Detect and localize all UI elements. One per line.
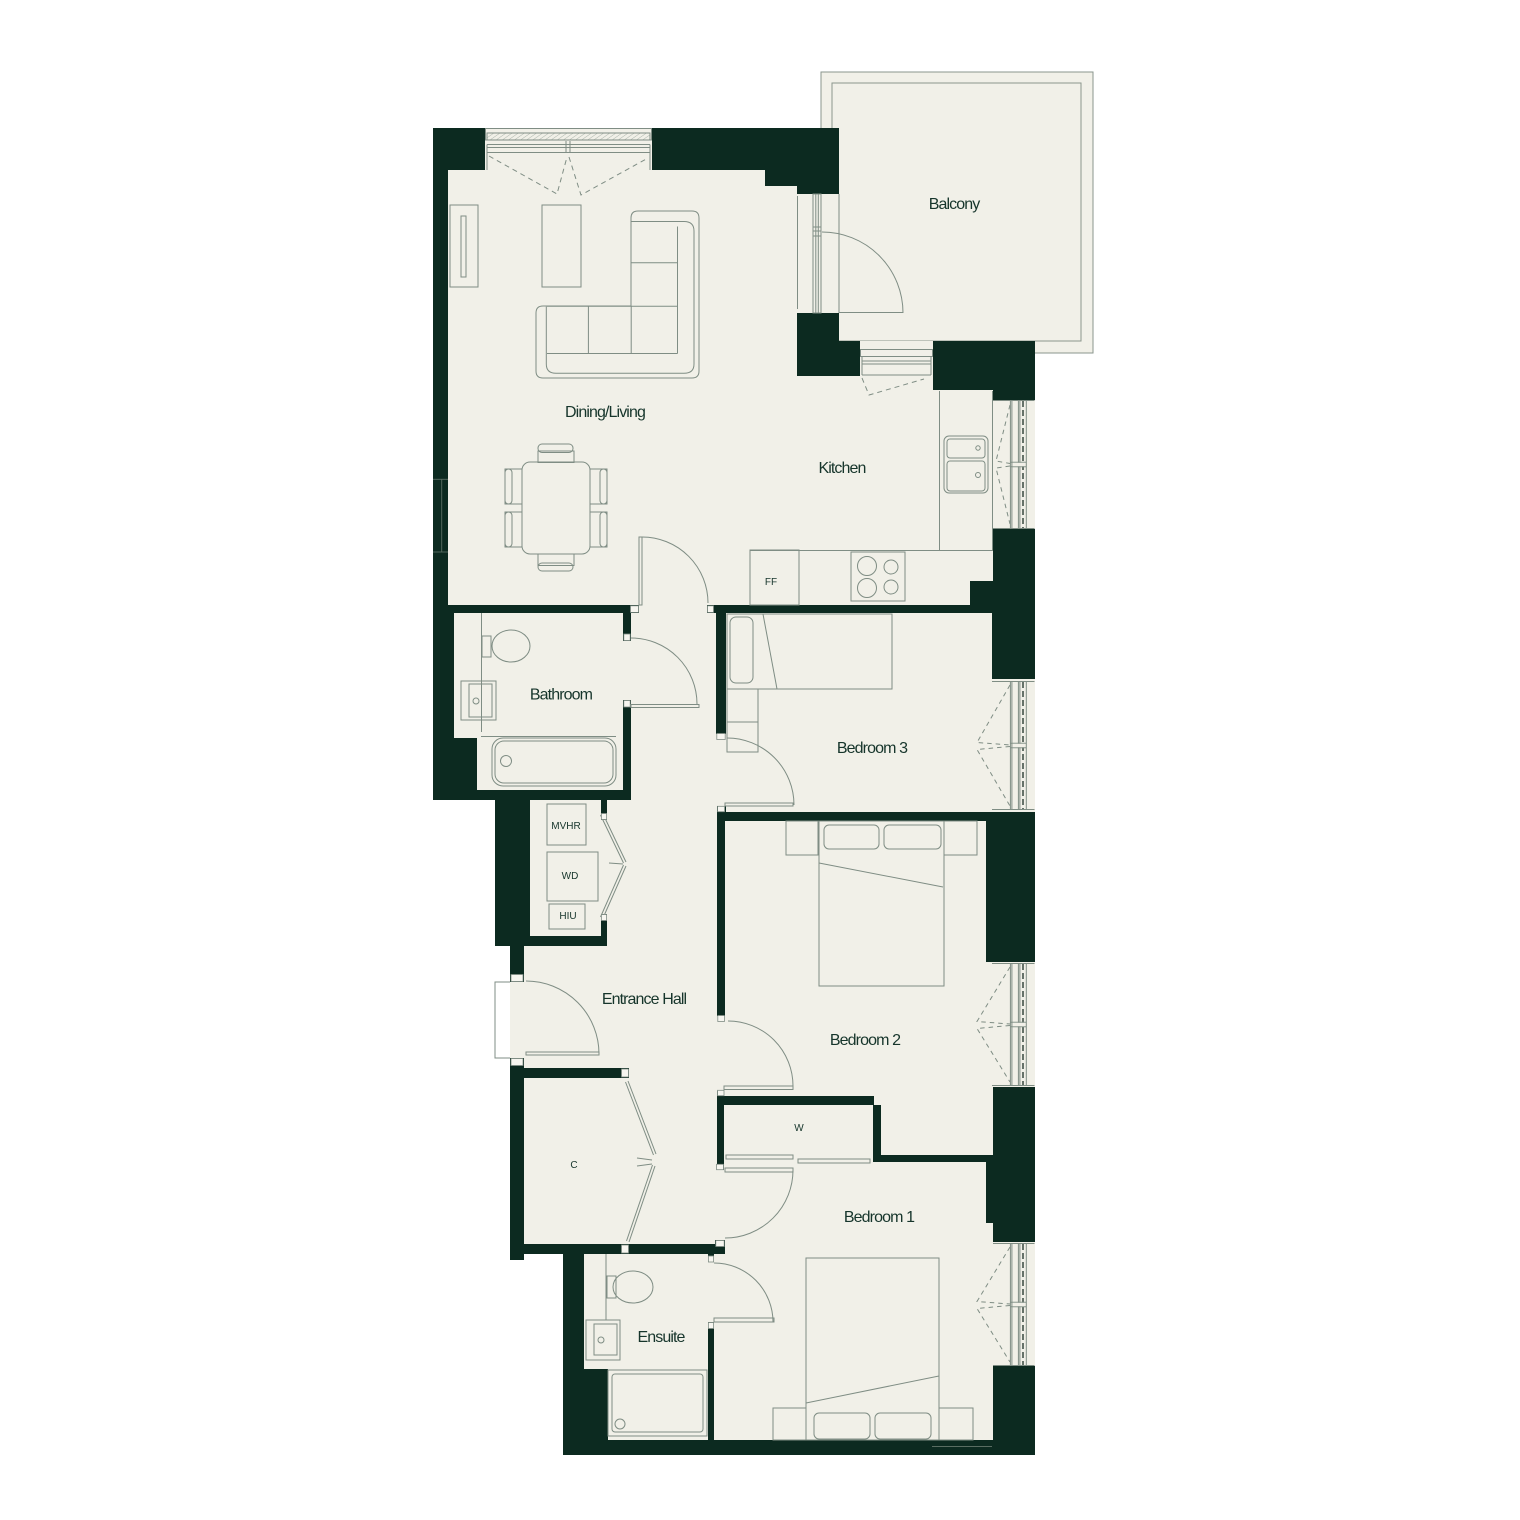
svg-text:WD: WD (562, 871, 579, 882)
svg-text:Bedroom 2: Bedroom 2 (830, 1032, 901, 1049)
svg-text:W: W (794, 1123, 804, 1134)
svg-text:MVHR: MVHR (551, 821, 580, 832)
svg-text:Ensuite: Ensuite (637, 1329, 685, 1346)
svg-text:Bedroom 3: Bedroom 3 (837, 740, 908, 757)
svg-text:Kitchen: Kitchen (818, 460, 865, 477)
svg-text:Balcony: Balcony (929, 196, 981, 213)
svg-text:Bedroom 1: Bedroom 1 (844, 1209, 915, 1226)
svg-text:Dining/Living: Dining/Living (565, 404, 645, 421)
svg-text:C: C (570, 1160, 577, 1171)
svg-text:HIU: HIU (559, 911, 576, 922)
svg-text:FF: FF (765, 577, 777, 588)
svg-text:Bathroom: Bathroom (530, 687, 593, 704)
svg-text:Entrance Hall: Entrance Hall (602, 991, 687, 1008)
